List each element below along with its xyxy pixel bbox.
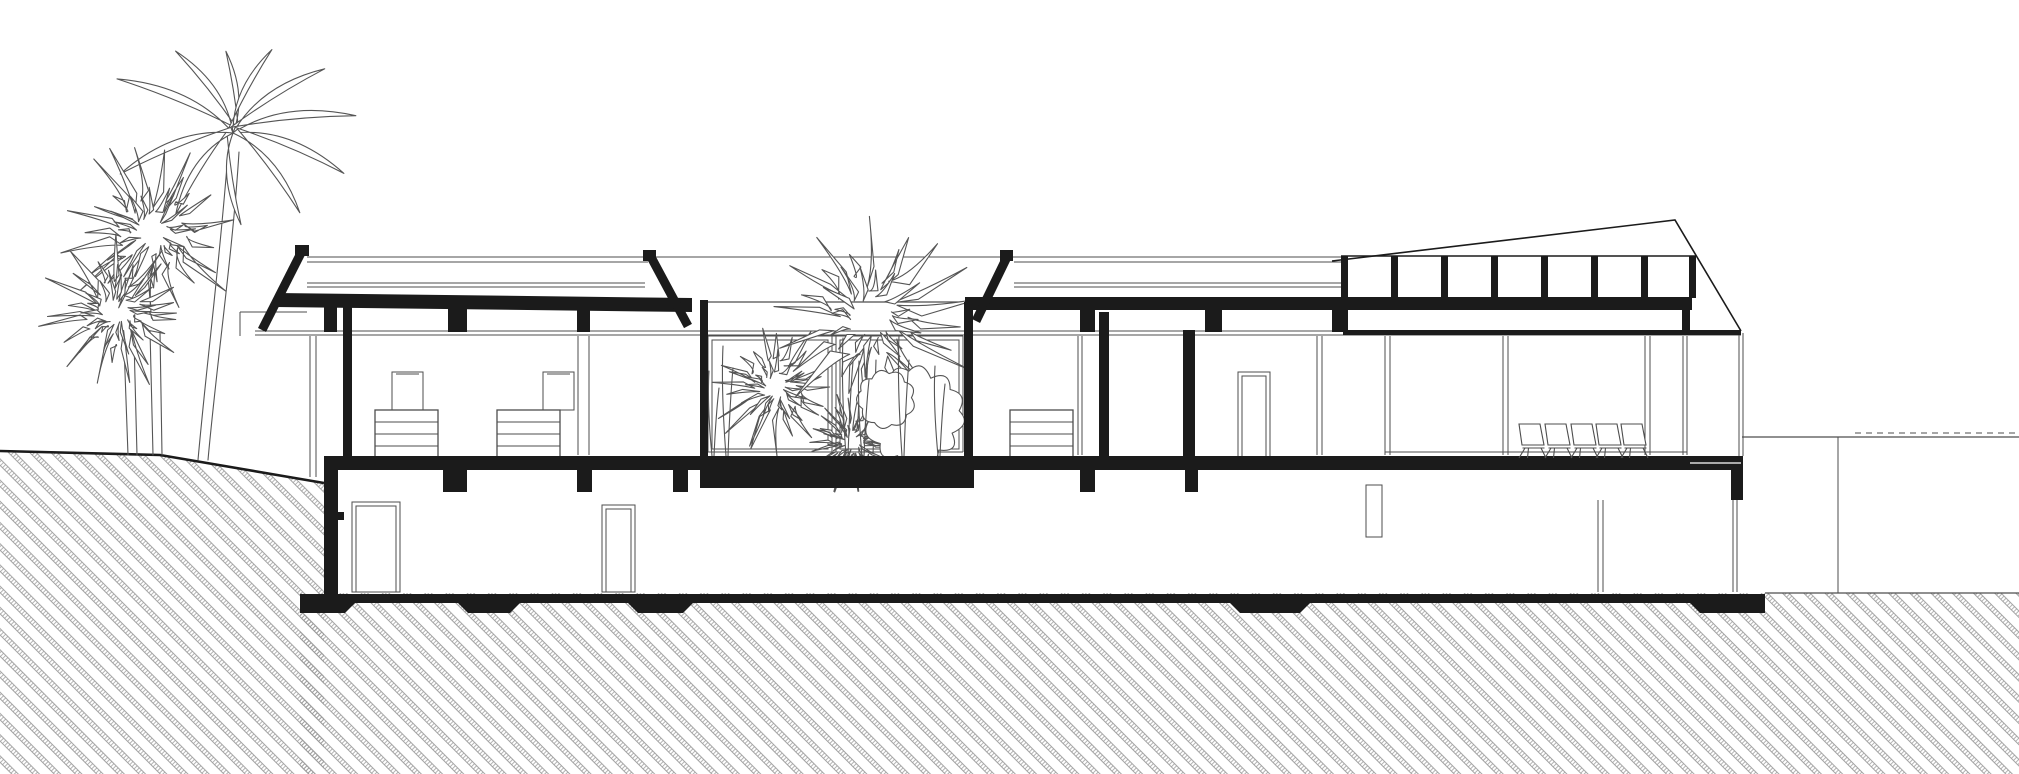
courtyard-planter-block (700, 456, 974, 488)
mirror (392, 372, 423, 410)
roof-beam-stub (1205, 307, 1222, 332)
right-block-ceiling-band (1343, 330, 1741, 335)
column (1183, 330, 1195, 457)
mirror (543, 372, 574, 410)
deck-lines-middle-roof (1014, 262, 1341, 287)
dresser (497, 372, 574, 457)
roof-beam-stub (324, 307, 337, 332)
basement-partition (1598, 500, 1603, 592)
chair (1519, 424, 1546, 458)
clerestory-mullion (1391, 256, 1398, 298)
base-slab (300, 594, 1765, 603)
chair (1596, 424, 1623, 458)
middle-roof-and-clerestory-sill (965, 297, 1692, 310)
clerestory-mullion (1491, 256, 1498, 298)
right-terrace-pocket (1743, 437, 2019, 593)
column (1099, 312, 1109, 457)
clerestory-mullion (1641, 256, 1648, 298)
glazing-mullion (1683, 336, 1687, 455)
right-block-outline (1332, 220, 1743, 456)
door-frame (602, 505, 635, 592)
clerestory-mullion (1591, 256, 1598, 298)
chair (1621, 424, 1648, 458)
chair-row (1519, 424, 1648, 458)
clerestory-mullion (1689, 256, 1696, 298)
glazing-mullion (1503, 336, 1508, 455)
chair (1545, 424, 1572, 458)
basement-left-wall (324, 470, 338, 594)
footing (458, 603, 520, 613)
basement-beam-stub (577, 470, 592, 492)
left-roof-left-fascia-cap (295, 245, 309, 256)
roof-beam-stub (577, 307, 590, 332)
left-roof-right-fascia (651, 257, 688, 326)
slab-right-cap (1731, 470, 1743, 500)
roof-beam-stub (448, 307, 467, 332)
glazing-mullion (1317, 336, 1322, 455)
column (343, 299, 352, 457)
deck-lines-left-roof (307, 262, 648, 287)
eave-post-left (310, 336, 316, 477)
footing (628, 603, 693, 613)
basement-wall-nib (338, 512, 344, 520)
glazing-mullion (1385, 336, 1390, 455)
left-roof-slab (276, 293, 692, 312)
basement-beam-stub (1185, 470, 1198, 492)
basement-beam-stub (443, 470, 467, 492)
palm-frond (230, 69, 325, 133)
earth-hatch-under-building (300, 593, 2019, 774)
door-frame (352, 502, 400, 592)
door-frame (1238, 372, 1270, 458)
basement-beam-stub (673, 470, 688, 492)
basement-beam-stub (1080, 470, 1095, 492)
column (964, 302, 973, 458)
grass-blade (722, 346, 733, 456)
clerestory-mullion (1441, 256, 1448, 298)
dresser (375, 372, 438, 457)
roof-beam-stubs (324, 307, 1348, 332)
chair (1571, 424, 1598, 458)
footing (1230, 603, 1310, 613)
roof-beam-stub (1080, 307, 1095, 332)
courtyard-plants (708, 216, 979, 492)
palm-frond (226, 133, 241, 225)
palm-frond (233, 127, 344, 173)
clerestory-mullions (1341, 256, 1696, 298)
dresser (1010, 410, 1073, 457)
glazing-mullion (578, 336, 589, 455)
footing (1690, 603, 1765, 613)
left-roof-right-fascia-cap (643, 250, 656, 261)
glazing-mullion (1645, 336, 1650, 455)
palm-crown (712, 328, 830, 458)
middle-roof-fascia-cap (1000, 250, 1013, 261)
palm-frond (117, 79, 236, 133)
glazing-mullion (1078, 336, 1082, 455)
earth-hatch-left-bank (0, 451, 324, 774)
architectural-section-canvas (0, 0, 2019, 774)
grass-blade (708, 371, 719, 456)
clerestory-mullion (1541, 256, 1548, 298)
left-roof-left-fascia (262, 251, 302, 330)
clerestory-mullion (1341, 256, 1348, 298)
basement-right-wall (1733, 500, 1737, 592)
column (700, 300, 708, 458)
roof-beam-stub (1332, 307, 1348, 332)
basement-lines (1366, 485, 1737, 592)
section-drawing-page (0, 0, 2019, 774)
upper-floor-slab (324, 456, 1743, 470)
basement-niche (1366, 485, 1382, 537)
beam-end-cap (1682, 302, 1690, 332)
palm-frond (120, 127, 233, 174)
